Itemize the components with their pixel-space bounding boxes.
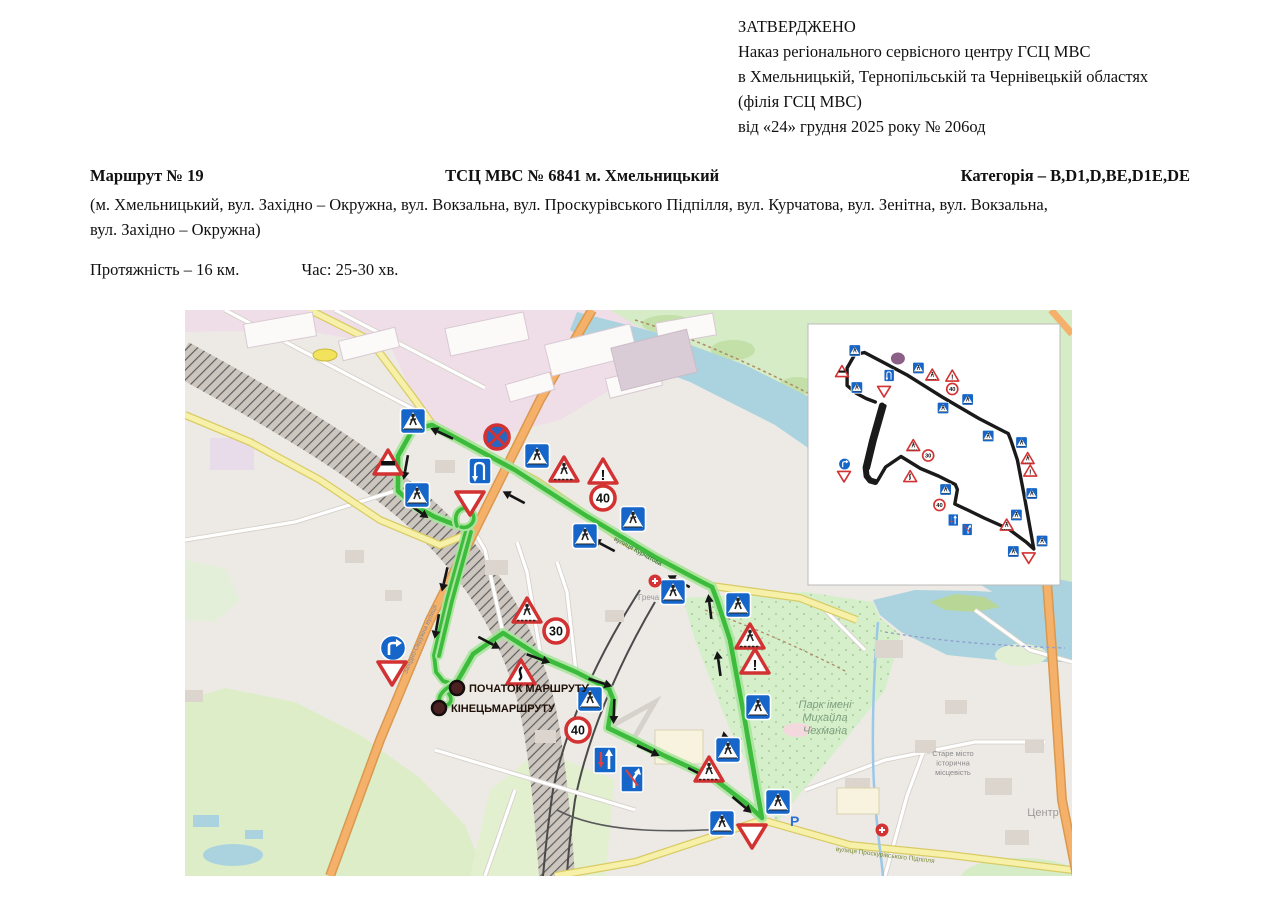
traffic-sign-hospital [876,824,889,837]
traffic-sign-s30: 30 [923,450,934,461]
traffic-sign-ped [661,580,686,605]
traffic-sign-ped [913,362,925,374]
traffic-sign-ped [401,409,426,434]
traffic-sign-ped [621,507,646,532]
traffic-sign-uturn [884,370,894,382]
svg-text:40: 40 [936,503,942,509]
service-center: ТСЦ МВС № 6841 м. Хмельницький [204,166,961,186]
traffic-sign-uturn [469,458,491,484]
traffic-sign-hospital [649,575,662,588]
traffic-sign-ped [405,483,430,508]
route-map: Парк іменіМихайлаЧехманаСтаре містоістор… [185,310,1072,876]
traffic-sign-lane2 [621,766,643,792]
route-streets: (м. Хмельницький, вул. Західно – Окружна… [90,192,1175,242]
traffic-sign-ped [849,345,861,357]
route-title-row: Маршрут № 19 ТСЦ МВС № 6841 м. Хмельниць… [90,166,1190,186]
traffic-sign-s40: 40 [947,383,958,394]
region-line: в Хмельницькій, Тернопільській та Чернів… [738,64,1208,89]
traffic-sign-ped [1016,437,1027,449]
map-canvas: Парк іменіМихайлаЧехманаСтаре містоістор… [185,310,1072,876]
date-line: від «24» грудня 2025 року № 206од [738,114,1208,139]
traffic-sign-ped [573,524,598,549]
traffic-sign-ped [962,394,974,406]
streets-line-1: (м. Хмельницький, вул. Західно – Окружна… [90,192,1175,217]
start-point [450,681,464,695]
traffic-sign-lane1 [948,514,958,526]
traffic-sign-ped [726,593,751,618]
branch-line: (філія ГСЦ МВС) [738,89,1208,114]
route-time: Час: 25-30 хв. [302,260,399,279]
svg-text:40: 40 [571,724,585,738]
traffic-sign-ped [1036,535,1048,547]
traffic-sign-ped [1008,546,1020,558]
traffic-sign-ped [716,738,741,763]
traffic-sign-ped [766,790,791,815]
traffic-sign-s40: 40 [566,718,590,742]
traffic-sign-ped [710,811,735,836]
traffic-sign-s40: 40 [591,486,615,510]
old-town-label: Старе містоісторичнамісцевість [932,749,973,777]
traffic-sign-s40: 40 [934,499,945,510]
svg-text:40: 40 [949,387,955,393]
traffic-sign-ped [1026,488,1038,500]
route-number: Маршрут № 19 [90,166,204,186]
parking-label: P [790,813,799,829]
traffic-sign-s30: 30 [544,619,568,643]
traffic-sign-nostop [485,425,509,449]
traffic-sign-lane2 [962,524,972,536]
traffic-sign-turnR [839,458,851,470]
route-category: Категорія – B,D1,D,BE,D1E,DE [961,166,1190,186]
svg-text:30: 30 [549,625,563,639]
traffic-sign-turnR [381,636,406,661]
traffic-sign-ped [982,430,994,442]
document-page: { "header": { "line1": "ЗАТВЕРДЖЕНО", "l… [0,0,1280,904]
traffic-sign-ped [746,695,771,720]
svg-text:!: ! [1029,470,1031,477]
center-label: Центр [1027,807,1059,819]
inset-overview-layer: !40!3040 [808,324,1060,585]
svg-text:!: ! [951,375,953,382]
svg-text:!: ! [601,467,606,484]
traffic-sign-ped [1011,509,1023,521]
traffic-sign-ped [937,402,949,414]
approval-header: ЗАТВЕРДЖЕНО Наказ регіонального сервісно… [738,14,1208,139]
traffic-sign-ped [525,444,550,469]
route-metrics: Протяжність – 16 км. Час: 25-30 хв. [90,260,398,280]
svg-text:!: ! [753,657,758,674]
streets-line-2: вул. Західно – Окружна) [90,217,1175,242]
svg-text:30: 30 [925,454,931,460]
park-name-label: Парк іменіМихайлаЧехмана [798,699,852,737]
start-label: ПОЧАТОК МАРШРУТУ [469,683,589,695]
traffic-sign-lane1 [594,747,616,773]
order-line: Наказ регіонального сервісного центру ГС… [738,39,1208,64]
approved-line: ЗАТВЕРДЖЕНО [738,14,1208,39]
traffic-sign-ped [851,382,863,394]
end-label: КІНЕЦЬМАРШРУТУ [451,703,555,715]
traffic-sign-ped [940,484,952,496]
end-point [432,701,446,715]
svg-text:40: 40 [596,492,610,506]
route-length: Протяжність – 16 км. [90,260,239,279]
